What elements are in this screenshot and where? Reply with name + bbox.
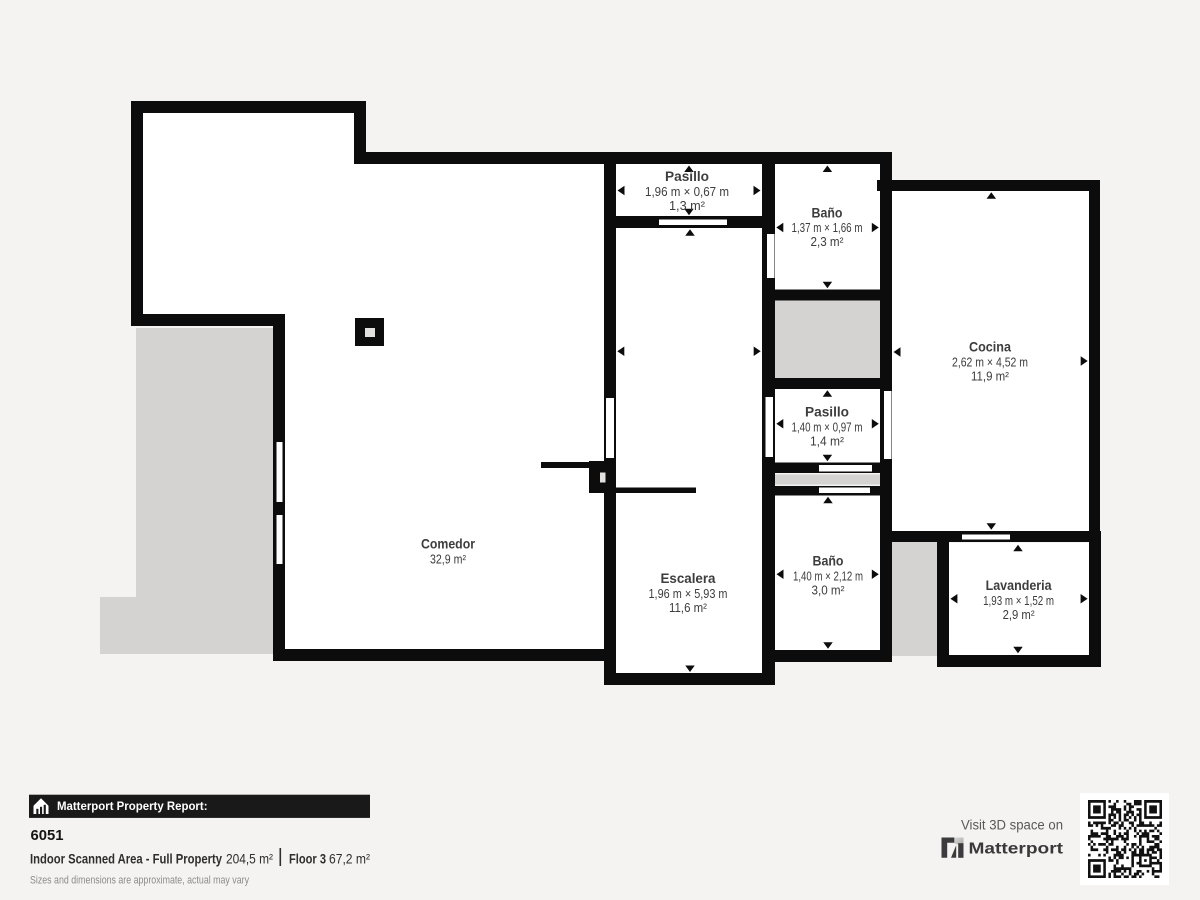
svg-text:6051: 6051 <box>31 827 65 844</box>
svg-text:1,40 m × 2,12 m: 1,40 m × 2,12 m <box>793 569 863 583</box>
svg-text:1,96 m × 5,93 m: 1,96 m × 5,93 m <box>649 587 728 601</box>
svg-text:Lavanderia: Lavanderia <box>986 578 1052 593</box>
svg-text:Floor 3: Floor 3 <box>289 851 326 866</box>
svg-text:204,5 m²: 204,5 m² <box>226 851 273 866</box>
svg-text:Comedor: Comedor <box>421 535 475 551</box>
svg-text:Baño: Baño <box>812 206 843 221</box>
svg-text:1,4 m²: 1,4 m² <box>810 434 844 448</box>
svg-text:Baño: Baño <box>813 554 844 569</box>
svg-text:Pasillo: Pasillo <box>665 169 709 184</box>
svg-text:Escalera: Escalera <box>661 571 716 586</box>
svg-text:Pasillo: Pasillo <box>805 405 849 420</box>
svg-text:2,3 m²: 2,3 m² <box>811 235 844 249</box>
svg-text:3,0 m²: 3,0 m² <box>812 583 845 597</box>
svg-text:Matterport Property Report:: Matterport Property Report: <box>57 799 208 813</box>
svg-text:2,62 m × 4,52 m: 2,62 m × 4,52 m <box>952 355 1028 369</box>
svg-text:32,9 m²: 32,9 m² <box>430 553 466 567</box>
svg-text:1,3 m²: 1,3 m² <box>669 199 705 213</box>
svg-text:11,9 m²: 11,9 m² <box>971 369 1009 383</box>
svg-text:Cocina: Cocina <box>969 340 1011 355</box>
svg-text:67,2 m²: 67,2 m² <box>329 851 370 866</box>
svg-text:Visit 3D space on: Visit 3D space on <box>961 818 1063 833</box>
svg-text:Sizes and dimensions are appro: Sizes and dimensions are approximate, ac… <box>30 874 249 886</box>
svg-text:1,93 m × 1,52 m: 1,93 m × 1,52 m <box>983 594 1054 608</box>
svg-text:11,6 m²: 11,6 m² <box>669 601 707 615</box>
svg-text:1,37 m × 1,66 m: 1,37 m × 1,66 m <box>792 221 863 235</box>
svg-text:Matterport: Matterport <box>969 840 1064 857</box>
svg-text:2,9 m²: 2,9 m² <box>1003 608 1035 622</box>
svg-text:1,40 m × 0,97 m: 1,40 m × 0,97 m <box>792 420 863 434</box>
svg-text:1,96 m × 0,67 m: 1,96 m × 0,67 m <box>645 185 729 199</box>
svg-text:Indoor Scanned Area - Full Pro: Indoor Scanned Area - Full Property <box>30 851 222 866</box>
